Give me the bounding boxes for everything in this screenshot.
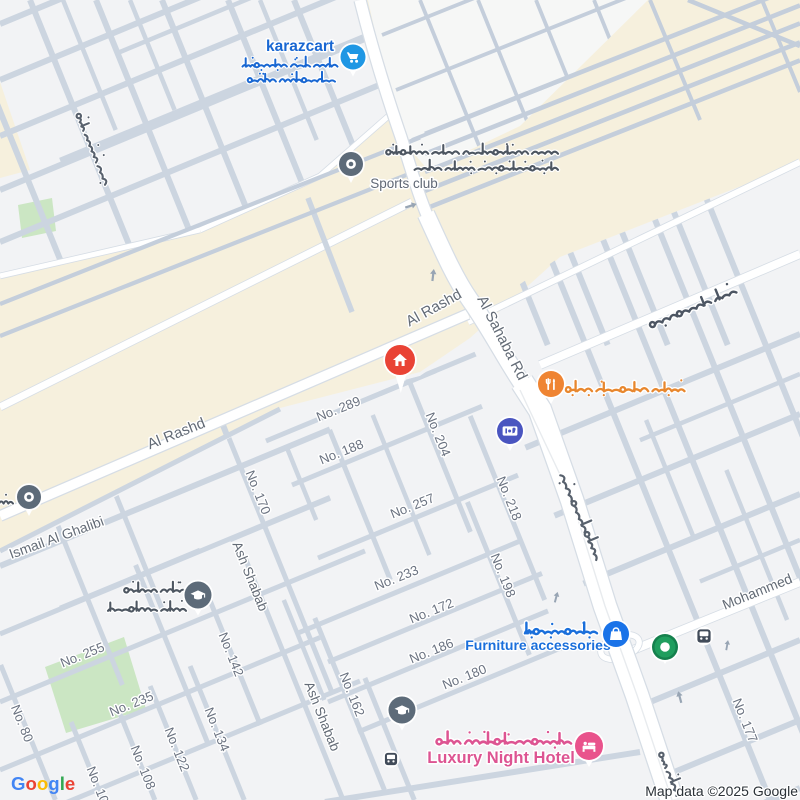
- svg-text:karazcart: karazcart: [266, 38, 334, 55]
- svg-text:Map data ©2025 Google: Map data ©2025 Google: [645, 783, 798, 799]
- svg-text:Sports club: Sports club: [370, 176, 438, 191]
- svg-text:Google: Google: [11, 773, 75, 794]
- svg-text:Luxury Night Hotel: Luxury Night Hotel: [427, 749, 575, 767]
